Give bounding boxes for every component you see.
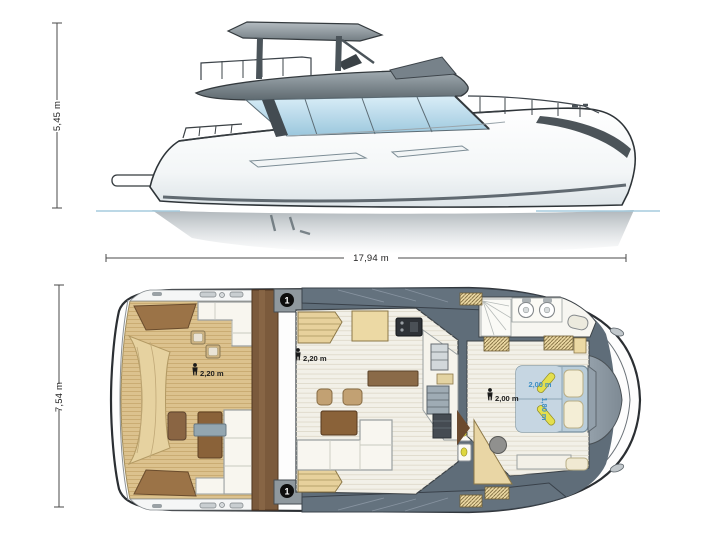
deck-locker-hatch-lines (460, 495, 482, 507)
deck-plan-view: 2,00 m 1,80 m 1 1 (111, 288, 640, 512)
fridge (431, 344, 448, 370)
cockpit-bench-bottom (224, 410, 252, 494)
deck-hardware (230, 503, 243, 508)
dimension-length: 17,94 m (106, 253, 626, 264)
saloon-sideboard (368, 371, 418, 386)
plan-marker-1: 1 (280, 293, 294, 307)
deck-hardware (220, 293, 225, 298)
cockpit-side-table-2 (206, 345, 220, 358)
aft-cockpit (121, 301, 252, 499)
owner-cabin: 2,00 m 1,80 m (457, 336, 596, 484)
cabinet-tan (574, 338, 586, 353)
water-reflection (152, 210, 634, 254)
bed-length-label: 2,00 m (528, 380, 551, 389)
cockpit-table-tray (194, 424, 226, 436)
cabin-dresser (517, 455, 571, 469)
pillow (564, 401, 583, 428)
marker-2-label: 1 (284, 486, 289, 496)
deck-hardware (152, 504, 162, 508)
height-dimension-label: 5,45 m (52, 101, 63, 131)
deck-hardware (230, 292, 243, 297)
deck-hardware (152, 292, 162, 296)
marker-1-label: 1 (284, 295, 289, 305)
cabin-headroom-label: 2,00 m (495, 394, 519, 403)
side-profile-view (96, 22, 660, 254)
dimension-height: 5,45 m (52, 23, 63, 208)
saloon-headroom-label: 2,20 m (303, 354, 327, 363)
cockpit-side-seat (168, 412, 186, 440)
stern-walkway-bottom (130, 499, 252, 510)
twin-washbasins (512, 298, 562, 322)
saloon-aft-bulkhead-highlight (259, 290, 265, 510)
double-bed: 2,00 m 1,80 m (516, 366, 596, 432)
galley-locker (437, 374, 453, 384)
saloon (296, 308, 458, 494)
deck-hardware (200, 292, 216, 297)
deck-hardware (220, 503, 225, 508)
vanity-chair (490, 437, 507, 454)
hardtop (228, 22, 382, 41)
dimension-beam: 7,54 m (54, 285, 65, 507)
galley-cabinet (352, 311, 388, 341)
saloon-pouf-2 (343, 389, 362, 405)
plan-marker-2: 1 (280, 484, 294, 498)
cockpit-bench-small (196, 478, 224, 494)
deck-locker-hatch-lines (460, 293, 482, 305)
bed-width-label: 1,80 m (540, 397, 549, 420)
wardrobe-hatch-lines (544, 336, 573, 350)
cooktop (396, 318, 422, 336)
headboard (588, 366, 596, 432)
saloon-pouf (317, 389, 332, 405)
deck-locker-hatch-lines (485, 487, 509, 499)
cabin-seat-cream (566, 458, 588, 470)
drawing-svg: 5,45 m 17,94 m 7,54 m (0, 0, 712, 534)
pillow (564, 370, 583, 397)
yacht-spec-sheet: 5,45 m 17,94 m 7,54 m (0, 0, 712, 534)
shower (481, 299, 511, 336)
length-dimension-label: 17,94 m (353, 253, 389, 264)
forward-bathroom (479, 297, 596, 337)
cockpit-headroom-label: 2,20 m (200, 369, 224, 378)
flybridge-helm-seat (338, 54, 362, 70)
wardrobe-hatch-lines (484, 337, 509, 351)
beam-dimension-label: 7,54 m (54, 382, 65, 412)
cockpit-side-table (191, 331, 205, 344)
coffee-table (321, 411, 357, 435)
stern-walkway-top (130, 290, 252, 301)
deck-hardware (200, 503, 216, 508)
